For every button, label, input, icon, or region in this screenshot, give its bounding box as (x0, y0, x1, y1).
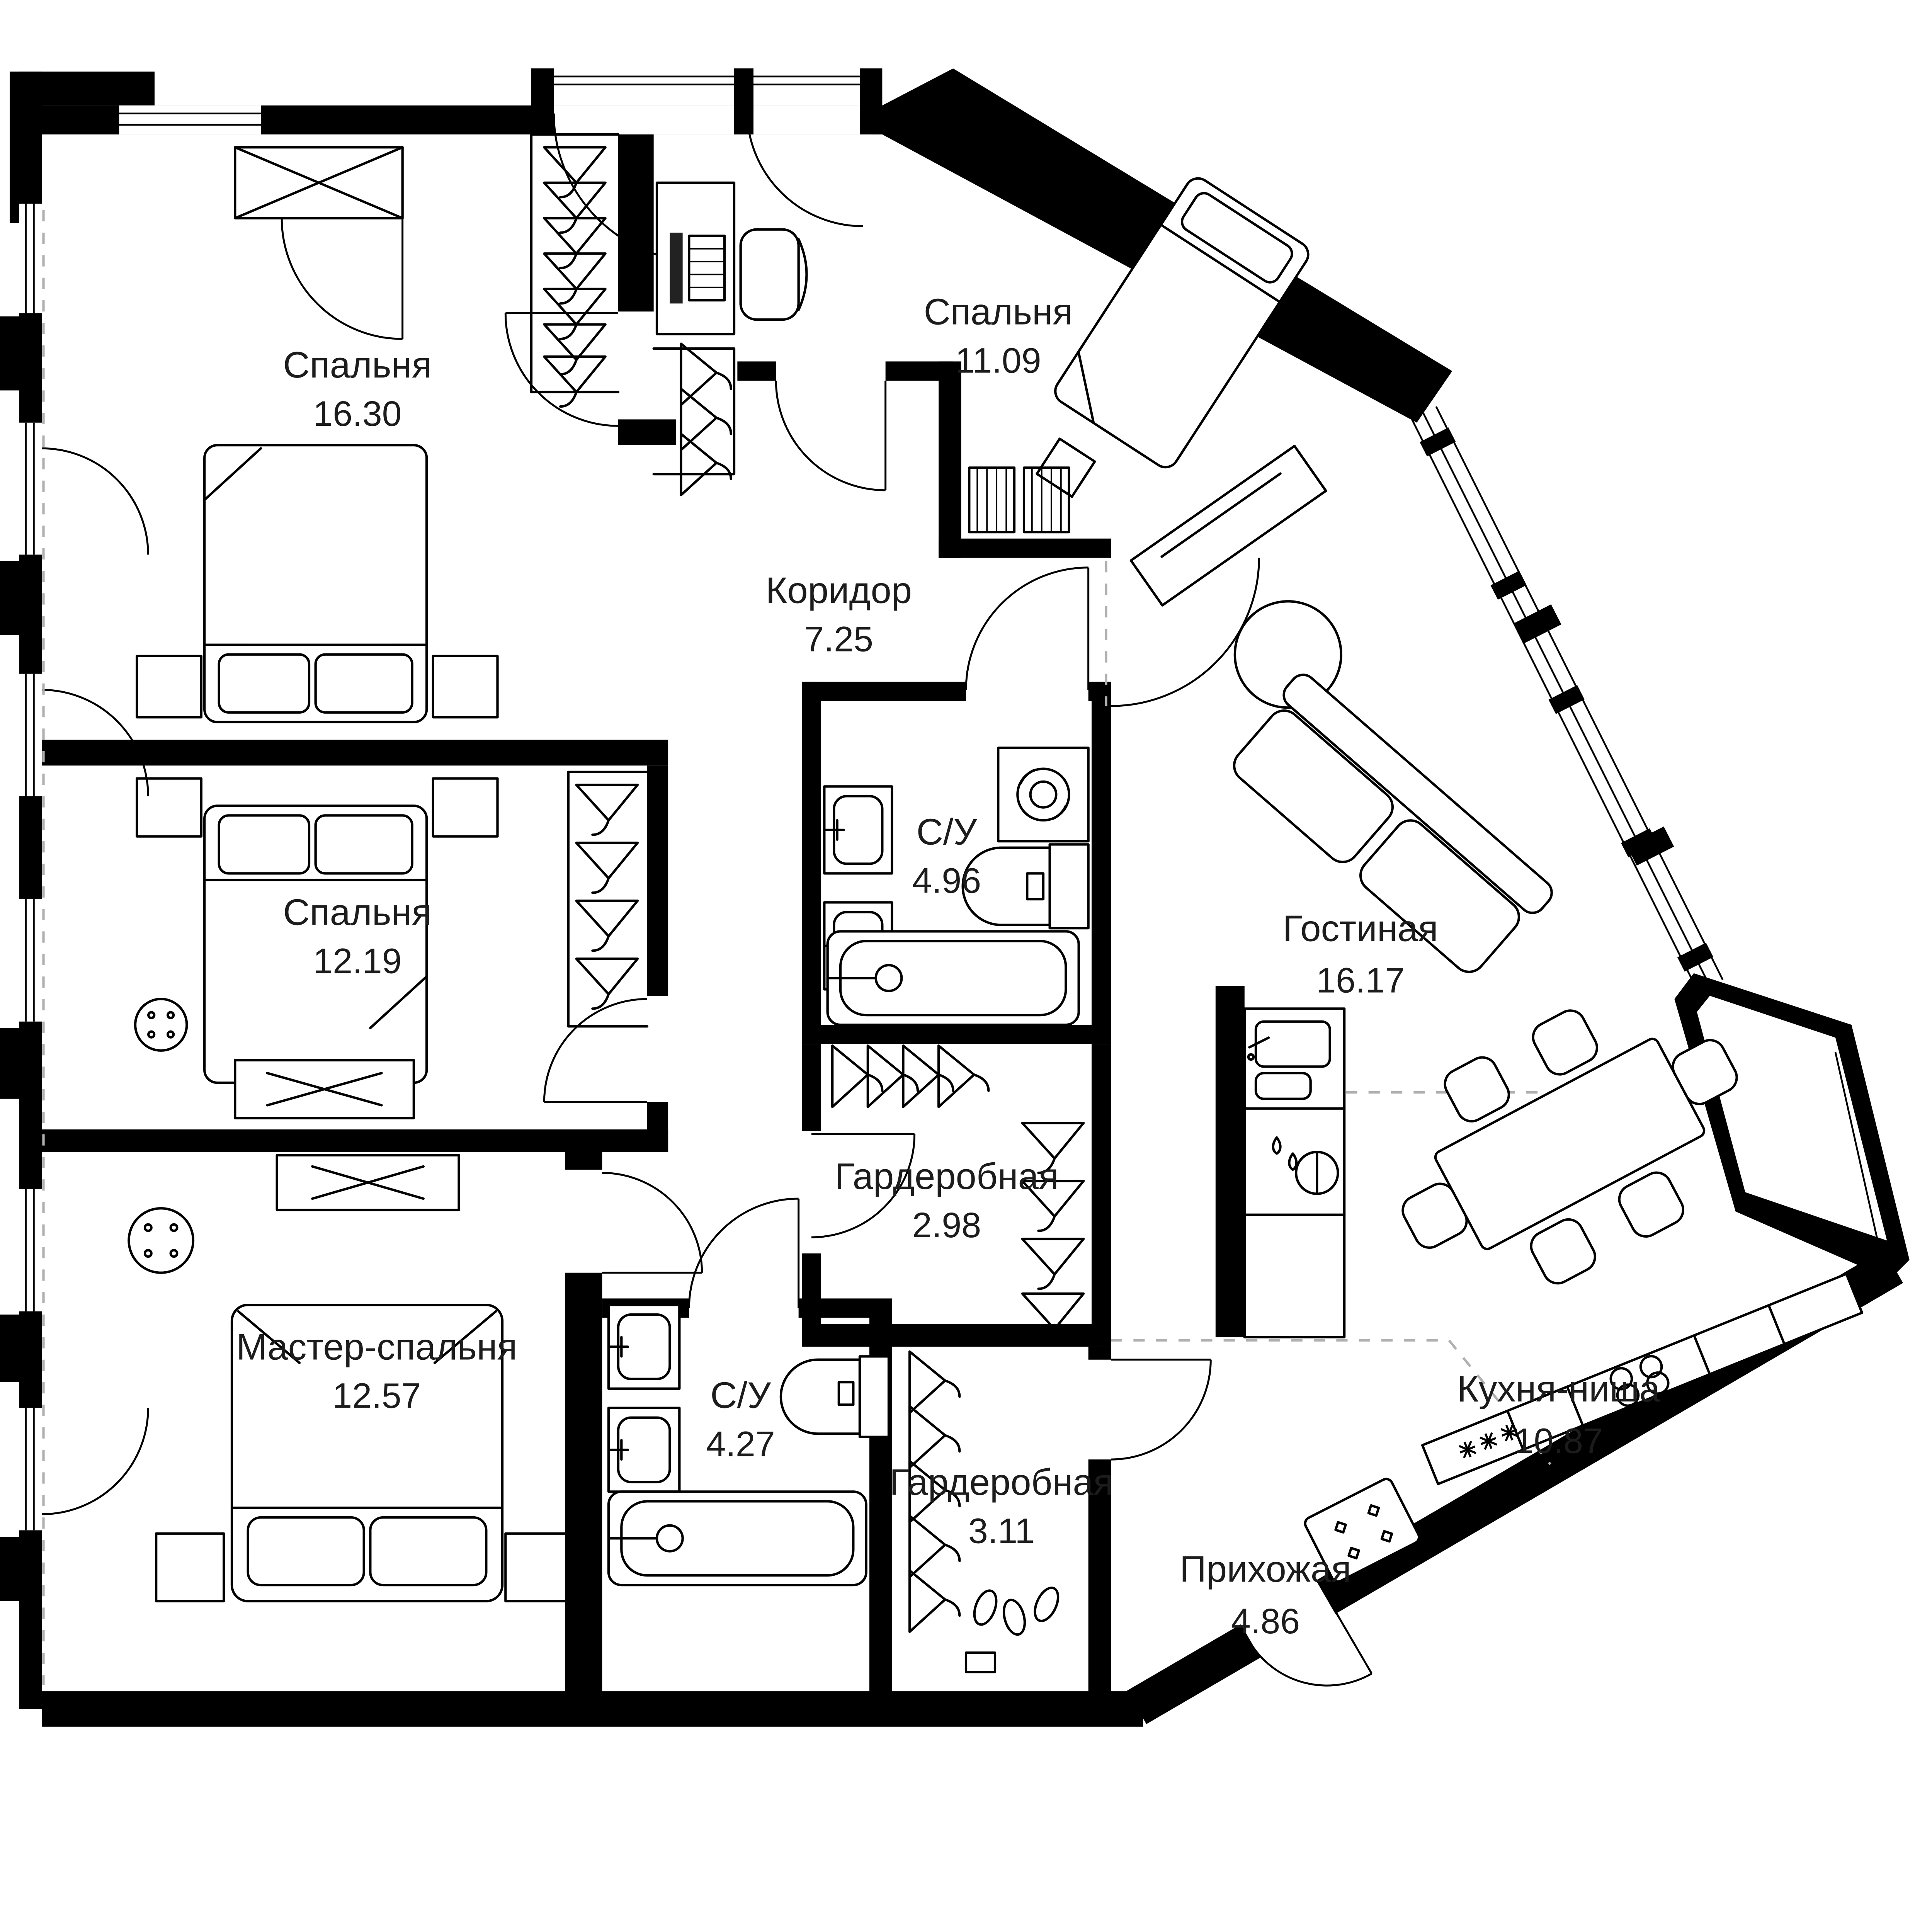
room-area: 4.86 (1231, 1602, 1300, 1641)
chair-icon (1614, 1168, 1689, 1242)
closet-icon (654, 349, 734, 474)
floor-plan-svg: Спальня 16.30 Спальня 11.09 Коридор 7.25… (0, 0, 1932, 1932)
hanger-icon (577, 785, 638, 835)
chair-icon (1528, 1005, 1602, 1080)
room-label: Коридор (766, 570, 912, 611)
room-label: Гардеробная (835, 1156, 1059, 1197)
monitor-icon (670, 233, 682, 303)
side-table-icon (129, 1208, 193, 1273)
chair-icon (741, 230, 799, 320)
hanger-icon (910, 1352, 959, 1413)
room-area: 10.87 (1514, 1421, 1603, 1461)
room-area: 11.09 (955, 341, 1041, 381)
window-door-arc (42, 1408, 148, 1514)
room-label: Спальня (283, 892, 432, 933)
nightstand-icon (433, 656, 498, 717)
floor-plan: Спальня 16.30 Спальня 11.09 Коридор 7.25… (0, 0, 1932, 1932)
kitchen-sink-icon (1256, 1022, 1330, 1067)
room-area: 12.57 (332, 1376, 421, 1416)
room-area: 12.19 (313, 942, 401, 981)
room-area: 3.11 (968, 1512, 1035, 1551)
room-label: Гардеробная (889, 1462, 1114, 1503)
desk-area (654, 183, 807, 495)
room-area: 4.27 (706, 1425, 775, 1464)
room-label: Спальня (283, 344, 432, 386)
radiator-icon (1024, 468, 1069, 532)
room-label: Кухня-ниша (1457, 1368, 1660, 1410)
nightstand-icon (156, 1534, 224, 1601)
hanger-icon (832, 1046, 882, 1107)
room-label: Гостиная (1283, 908, 1438, 949)
bedroom2-door-arc (776, 381, 885, 490)
bay-window (1674, 973, 1909, 1279)
bathroom1-door-arc (966, 568, 1088, 690)
room-label: С/У (917, 811, 978, 852)
room-area: 16.17 (1316, 961, 1405, 1000)
room-label: С/У (710, 1375, 771, 1416)
master-door-arc (602, 1173, 702, 1272)
room-area: 4.96 (912, 861, 981, 900)
nightstand-icon (505, 1534, 573, 1601)
bedroom3-door-arc (544, 999, 647, 1102)
closet-icon (531, 134, 618, 392)
room-label: Прихожая (1180, 1549, 1351, 1590)
toilet-icon (781, 1360, 860, 1434)
water-drop-icon (1273, 1138, 1281, 1154)
room-label: Мастер-спальня (236, 1327, 517, 1368)
chair-icon (1526, 1214, 1600, 1289)
room-area: 2.98 (912, 1206, 981, 1245)
radiator-icon (969, 468, 1014, 532)
chair-icon (1440, 1052, 1514, 1126)
nightstand-icon (137, 656, 201, 717)
washing-machine-icon (998, 748, 1088, 841)
shoes-icon (966, 1584, 1063, 1672)
room-area: 16.30 (313, 394, 401, 434)
window-door-arc (42, 448, 148, 554)
bathroom2-door-arc (689, 1199, 798, 1308)
nightstand-icon (137, 779, 201, 837)
wardrobe2-door-arc (1111, 1360, 1211, 1459)
tv-stand-icon (1131, 446, 1326, 605)
nightstand-icon (433, 779, 498, 837)
side-table-icon (135, 999, 187, 1050)
desk-icon (657, 183, 734, 334)
living-room-furniture (1131, 446, 1557, 984)
room-area: 7.25 (804, 619, 873, 659)
room-label: Спальня (924, 291, 1073, 333)
closet-icon (568, 772, 647, 1026)
